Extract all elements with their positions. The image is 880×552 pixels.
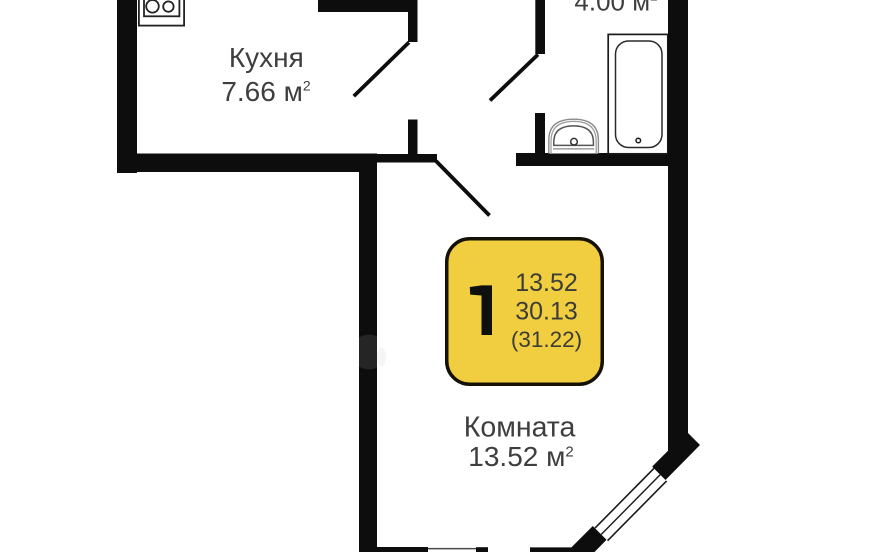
svg-text:(31.22): (31.22) — [511, 327, 582, 352]
svg-text:13.52: 13.52 — [515, 269, 578, 297]
svg-text:13.52 м2: 13.52 м2 — [468, 441, 573, 472]
svg-text:4.00 м2: 4.00 м2 — [574, 0, 657, 17]
svg-text:Комната: Комната — [464, 412, 576, 444]
svg-text:Кухня: Кухня — [229, 42, 304, 73]
svg-text:30.13: 30.13 — [515, 298, 578, 326]
svg-text:7.66 м2: 7.66 м2 — [221, 76, 311, 107]
